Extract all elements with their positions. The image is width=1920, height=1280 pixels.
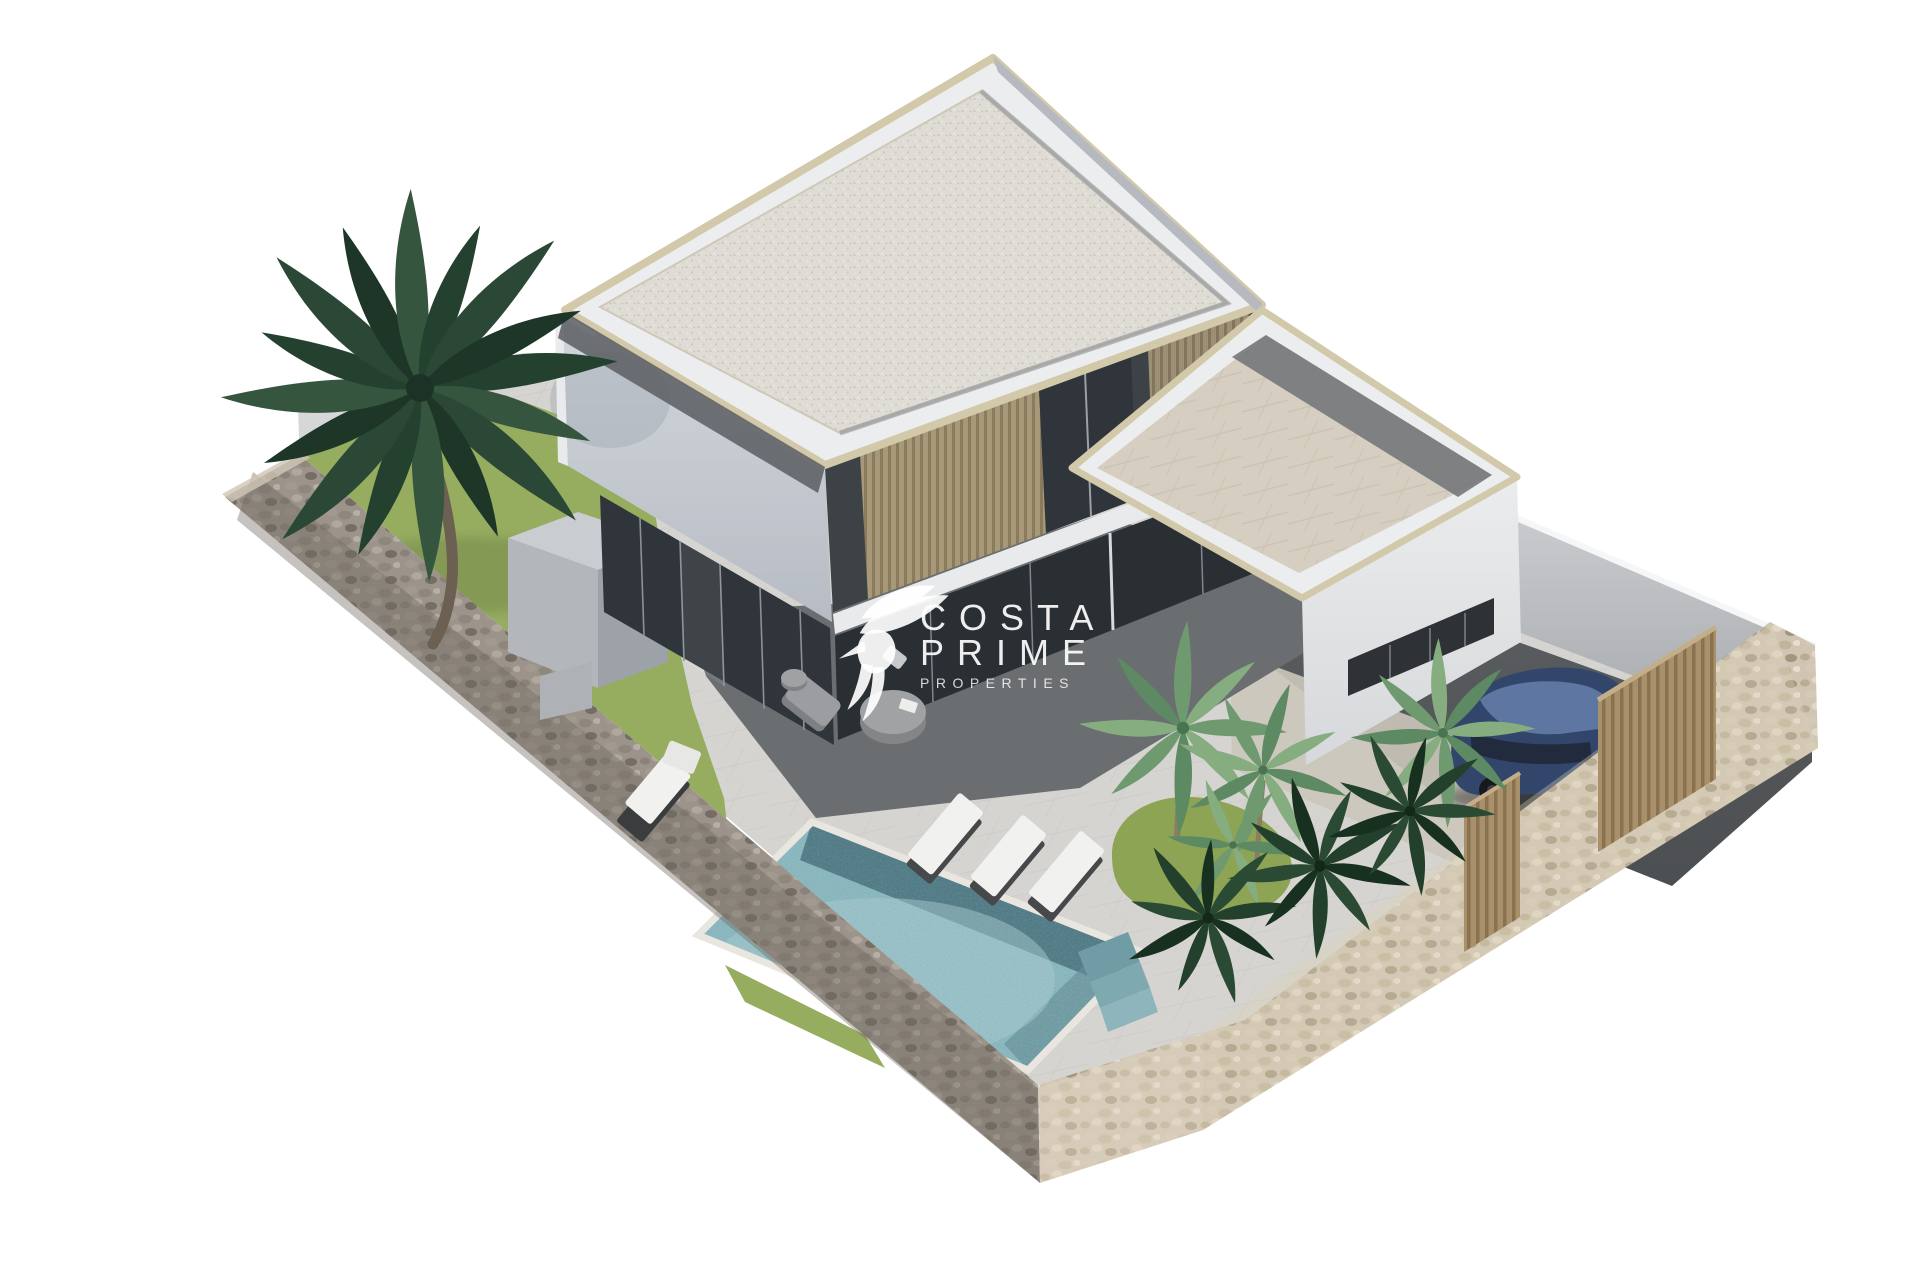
villa-render-scene (0, 0, 1920, 1280)
round-table (860, 690, 926, 734)
property-render: COSTA PRIME PROPERTIES (0, 0, 1920, 1280)
pouf (781, 669, 807, 687)
